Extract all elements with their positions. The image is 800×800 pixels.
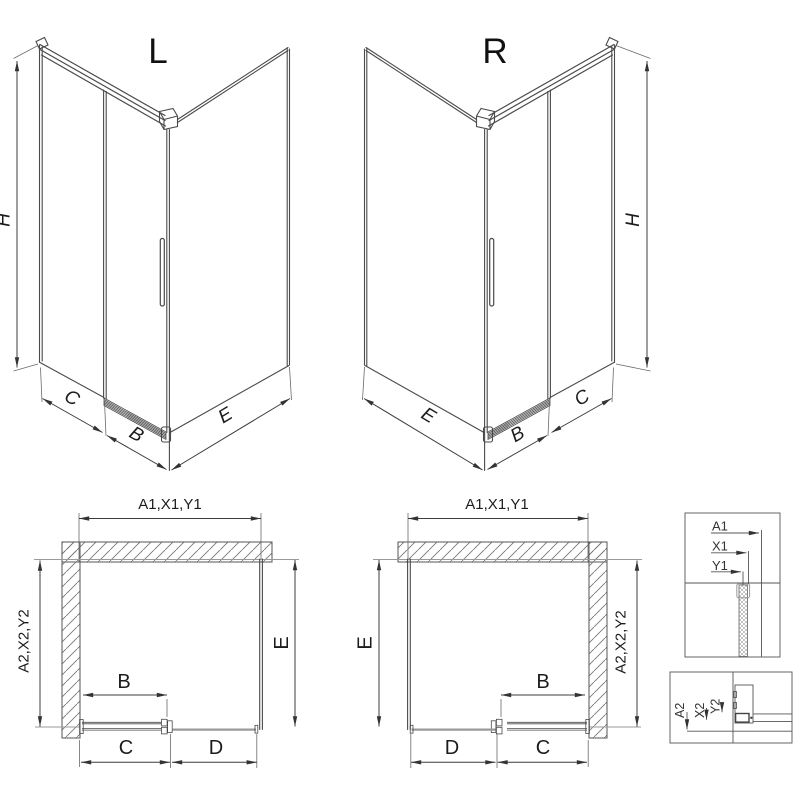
door-rail-plan bbox=[80, 719, 173, 734]
side-panel-edge bbox=[408, 559, 411, 730]
wall-right bbox=[589, 542, 607, 738]
dim-label-fixed: C bbox=[571, 386, 594, 411]
dim-label-side: E bbox=[215, 403, 237, 428]
dim-label-door: B bbox=[117, 671, 130, 693]
door-edge bbox=[548, 90, 551, 399]
detail-label-y2: Y2 bbox=[709, 699, 723, 714]
dim-label-side: E bbox=[417, 404, 439, 429]
door-edge bbox=[104, 90, 107, 399]
detail-label-a2: A2 bbox=[673, 703, 687, 718]
dim-label-height: H bbox=[623, 213, 644, 227]
dim-label-door: B bbox=[536, 671, 549, 693]
iso-view-right: H C B E R bbox=[363, 32, 651, 471]
rail-end-cap bbox=[36, 38, 48, 50]
iso-view-left: H C B E L bbox=[0, 32, 292, 471]
rail-profile-shoe bbox=[736, 714, 749, 723]
dim-label-width-group: A1,X1,Y1 bbox=[138, 496, 201, 513]
rail-end-cap bbox=[606, 38, 618, 50]
detail-label-a1: A1 bbox=[712, 519, 728, 534]
dim-label-side: E bbox=[271, 636, 293, 649]
dim-label-depth-group: A2,X2,Y2 bbox=[16, 609, 33, 672]
variant-title-left: L bbox=[148, 32, 167, 71]
corner-post bbox=[167, 130, 170, 471]
dim-label-fixed: C bbox=[61, 386, 84, 411]
plan-view-right: A1,X1,Y1 E A2,X2,Y2 B D C bbox=[355, 496, 643, 768]
door-rail-plan bbox=[491, 719, 589, 734]
detail-label-y1: Y1 bbox=[712, 558, 728, 573]
wall-profile-strip bbox=[739, 585, 748, 657]
door-handle bbox=[160, 239, 164, 307]
dim-label-open: D bbox=[445, 737, 459, 759]
detail-label-x1: X1 bbox=[712, 539, 728, 554]
dim-label-door: B bbox=[507, 422, 529, 447]
variant-title-right: R bbox=[482, 32, 507, 71]
roller-dot bbox=[750, 717, 752, 719]
dim-label-side: E bbox=[355, 636, 377, 649]
dim-label-height: H bbox=[0, 213, 15, 227]
dim-label-fixed: C bbox=[119, 737, 133, 759]
side-panel-edge bbox=[260, 559, 263, 730]
dim-label-door: B bbox=[126, 422, 148, 447]
diagram-canvas: H C B E L H C B bbox=[0, 0, 800, 800]
detail-label-x2: X2 bbox=[693, 703, 707, 718]
technical-drawing-page: H C B E L H C B bbox=[0, 0, 800, 800]
dim-line-E bbox=[172, 399, 291, 471]
dim-label-open: D bbox=[209, 737, 223, 759]
door-handle bbox=[490, 239, 494, 307]
dim-line-E bbox=[364, 399, 483, 471]
dim-label-fixed: C bbox=[536, 737, 550, 759]
corner-post bbox=[485, 130, 488, 471]
dim-label-depth-group: A2,X2,Y2 bbox=[613, 610, 630, 673]
plan-view-left: A1,X1,Y1 E A2,X2,Y2 B C D bbox=[16, 496, 300, 768]
detail-wall-profile: A1 X1 Y1 bbox=[685, 513, 780, 657]
wall-left bbox=[62, 542, 80, 738]
dim-label-width-group: A1,X1,Y1 bbox=[465, 496, 528, 513]
detail-rail-profile: A2 X2 Y2 bbox=[670, 672, 792, 743]
